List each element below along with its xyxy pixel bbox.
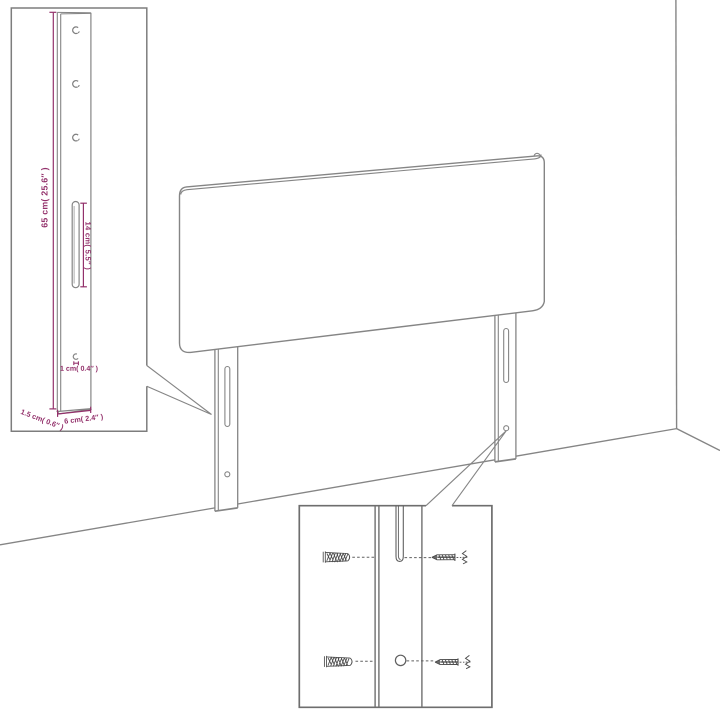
svg-text:1 cm( 0.4″ ): 1 cm( 0.4″ ) — [60, 365, 99, 373]
svg-text:65 cm( 25.6″ ): 65 cm( 25.6″ ) — [40, 167, 50, 228]
svg-text:14 cm( 5.5″ ): 14 cm( 5.5″ ) — [83, 221, 92, 270]
